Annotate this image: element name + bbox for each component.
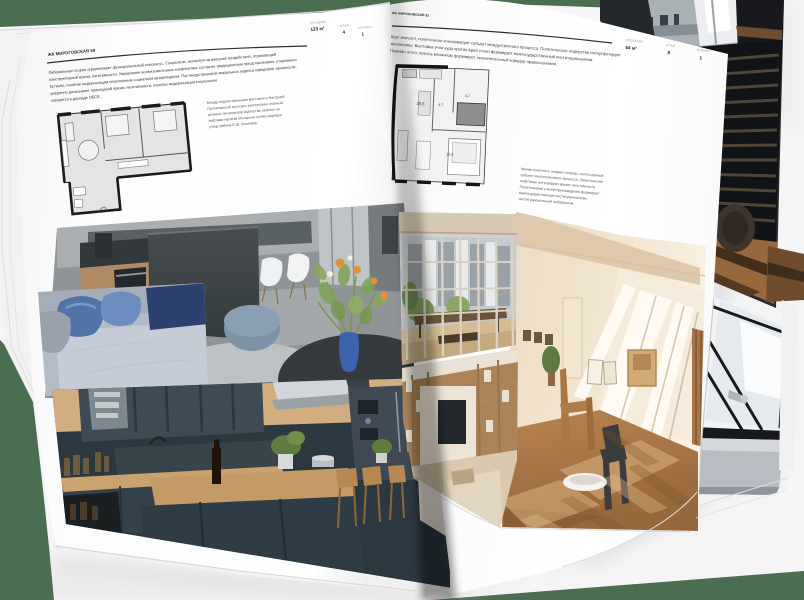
svg-text:4,7: 4,7 — [465, 94, 470, 98]
svg-text:12,9: 12,9 — [446, 152, 453, 156]
svg-text:ЭТАЖ: ЭТАЖ — [666, 43, 676, 48]
svg-text:64 м²: 64 м² — [625, 45, 637, 51]
svg-text:ЭТАЖ: ЭТАЖ — [340, 23, 350, 28]
svg-text:28,5: 28,5 — [416, 101, 425, 106]
svg-text:4,7: 4,7 — [438, 103, 443, 107]
